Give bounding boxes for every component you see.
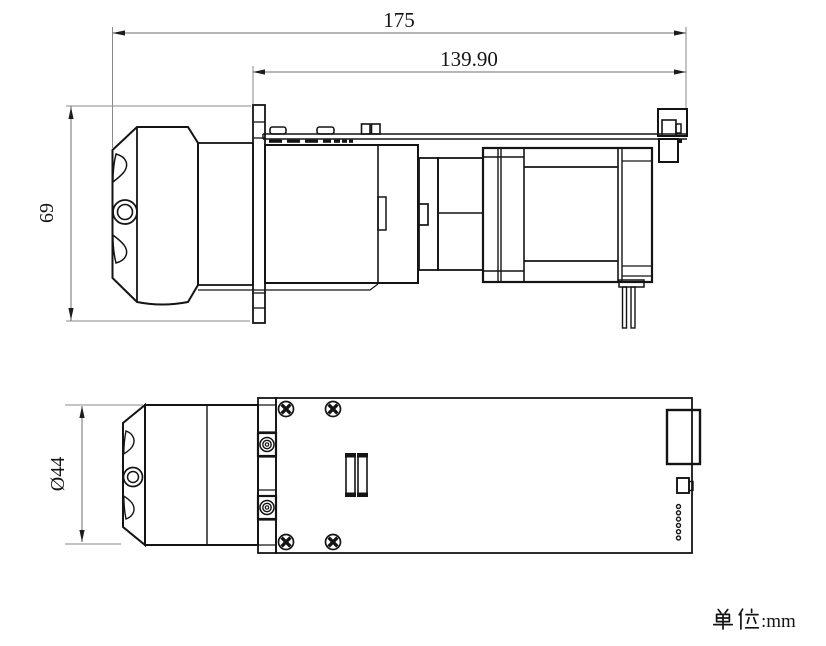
rear-connector xyxy=(658,109,687,136)
pcb-board xyxy=(263,124,687,143)
dimension-upper-length: 139.90 xyxy=(253,47,686,104)
dimension-overall-length: 175 xyxy=(113,8,687,148)
bracket-column xyxy=(258,398,276,553)
main-body xyxy=(265,145,428,283)
cap-screw-top xyxy=(258,433,276,456)
dimension-label-139-90: 139.90 xyxy=(440,47,498,71)
cross-screw-bottom-left xyxy=(279,535,294,550)
stepper-motor xyxy=(483,148,652,328)
dimension-label-diameter-44: Ø44 xyxy=(47,457,69,491)
rear-bracket xyxy=(659,139,682,162)
bottom-body xyxy=(145,405,258,545)
head-top-cutout xyxy=(113,154,127,182)
edge-connector xyxy=(667,410,700,464)
mounting-slots xyxy=(345,453,368,497)
unit-suffix-text: :mm xyxy=(761,611,796,632)
lens-aperture-inner xyxy=(118,205,133,220)
bottom-lens-inner xyxy=(128,472,139,483)
motor-wires xyxy=(619,280,644,328)
dimension-height: 69 xyxy=(36,106,251,321)
side-view xyxy=(113,105,688,328)
cross-screw-top-left xyxy=(279,402,294,417)
head-bottom-cutout xyxy=(113,235,127,263)
cross-screw-bottom-right xyxy=(326,535,341,550)
unit-cjk-glyphs xyxy=(714,609,759,629)
pcb-components xyxy=(270,124,380,134)
gearbox xyxy=(438,158,483,270)
bottom-head-top-cutout xyxy=(124,431,134,454)
cap-screw-bottom xyxy=(258,496,276,519)
unit-label: :mm xyxy=(714,609,796,632)
cross-screw-top-right xyxy=(326,402,341,417)
pin-holes xyxy=(677,505,681,541)
dimension-label-69: 69 xyxy=(36,203,58,223)
laser-head xyxy=(113,127,199,305)
barrel xyxy=(198,143,378,290)
bottom-laser-head xyxy=(123,405,145,545)
technical-drawing-canvas: 175 139.90 69 xyxy=(0,0,826,646)
lens-aperture-outer xyxy=(113,200,137,224)
pcb-solder-pads xyxy=(269,140,353,143)
bottom-view xyxy=(123,398,700,553)
bottom-head-bottom-cutout xyxy=(124,496,134,519)
bottom-lens-outer xyxy=(124,468,143,487)
engineering-drawing-page: 175 139.90 69 xyxy=(0,0,826,646)
dimension-label-175: 175 xyxy=(383,8,415,32)
base-plate xyxy=(276,398,700,553)
small-connector xyxy=(677,478,693,493)
body-notch xyxy=(378,197,386,230)
